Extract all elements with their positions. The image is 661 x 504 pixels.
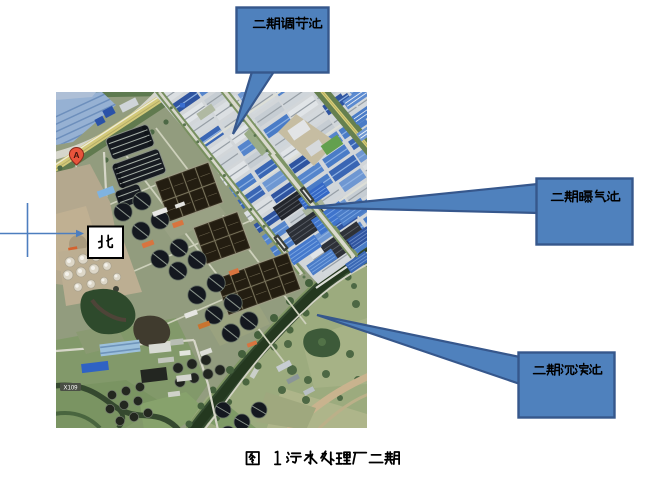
svg-text:A: A [73, 150, 79, 160]
svg-text:X109: X109 [63, 386, 78, 392]
